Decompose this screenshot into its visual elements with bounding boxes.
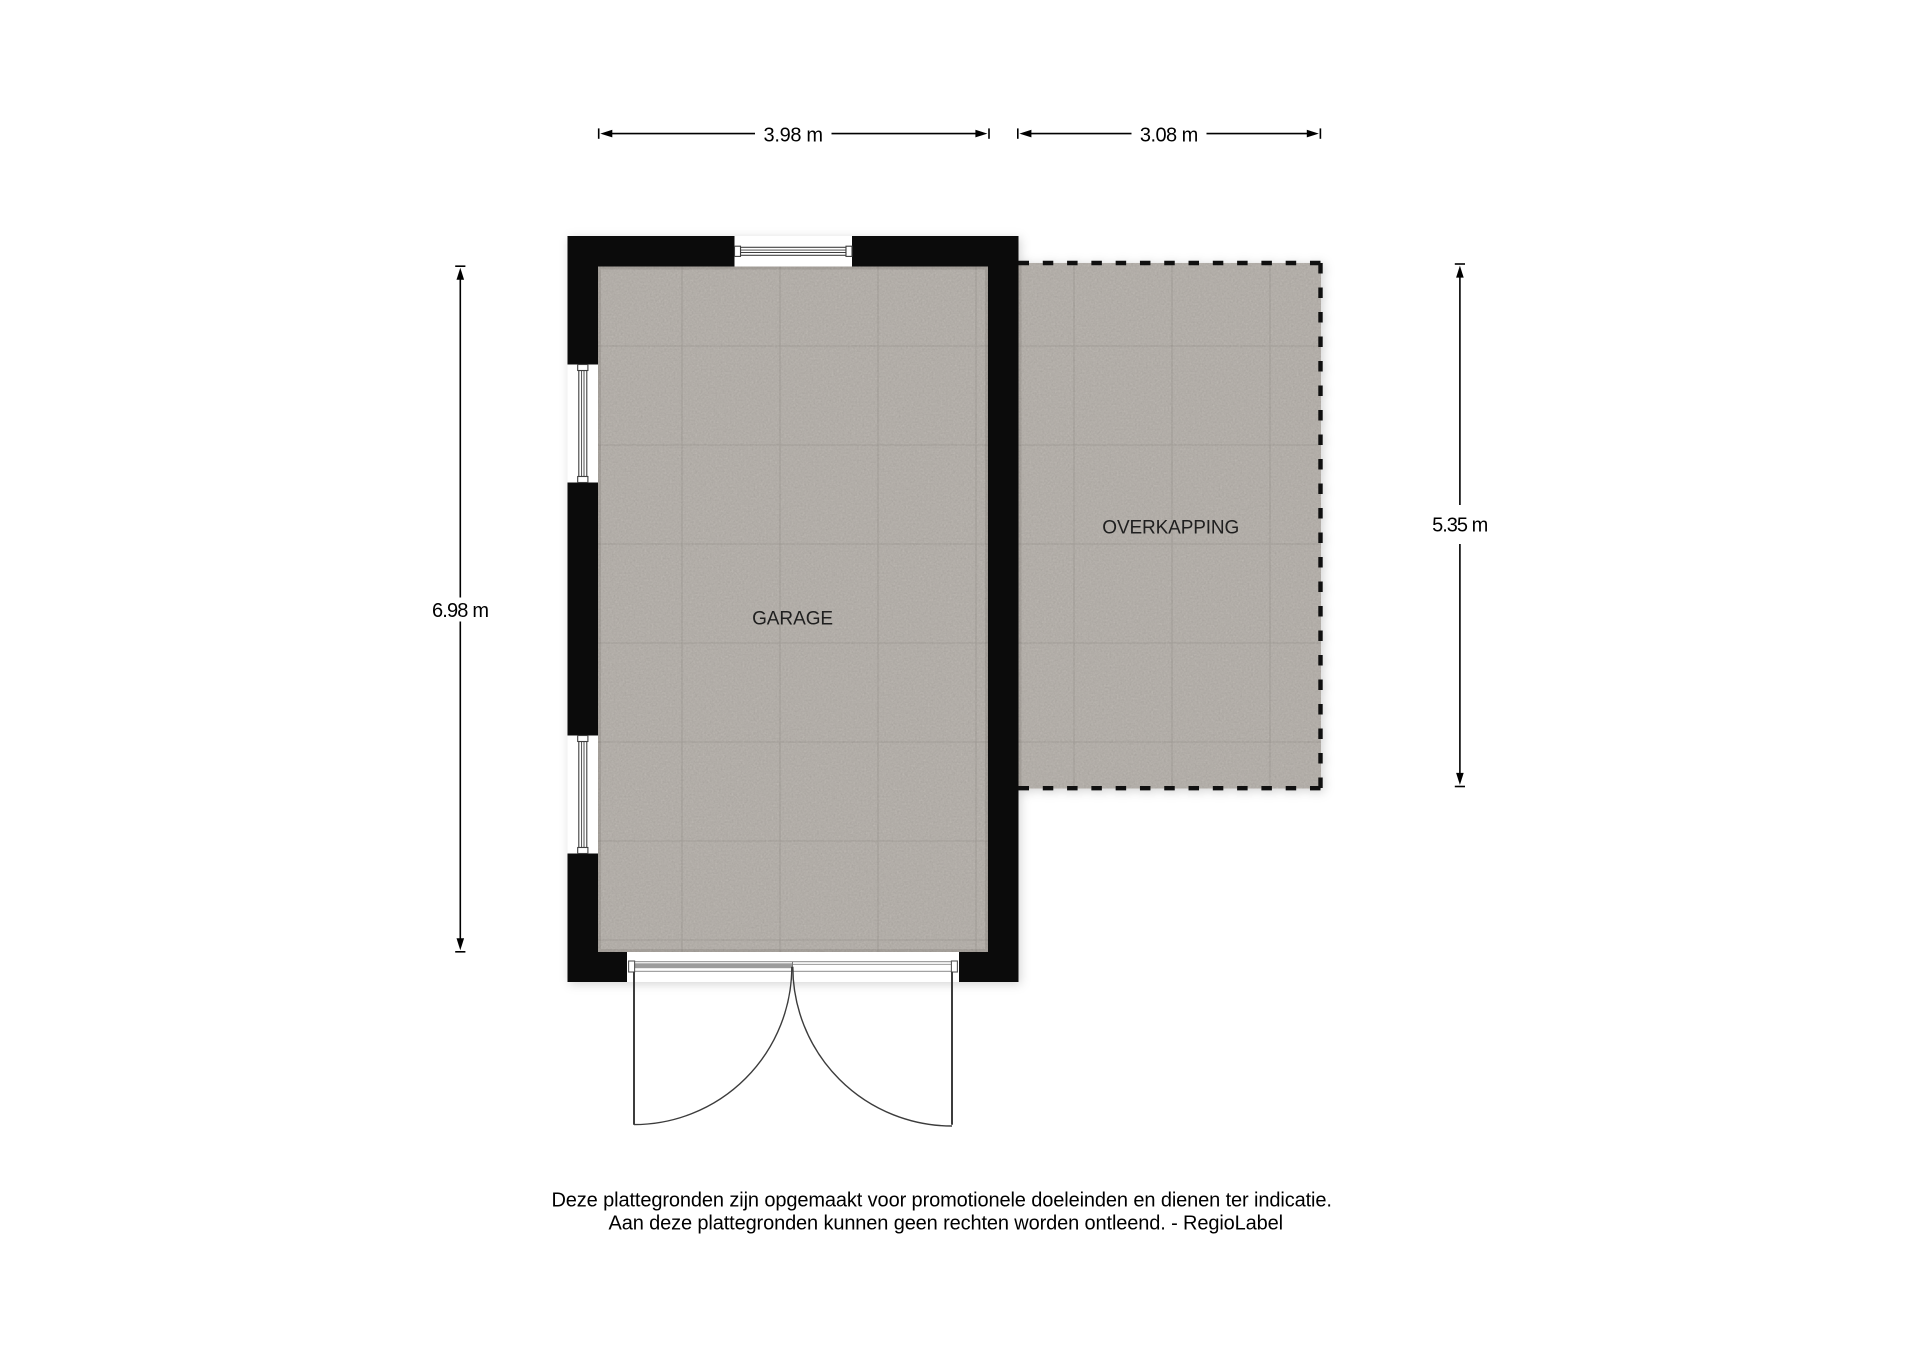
svg-text:6.98 m: 6.98 m (432, 600, 489, 622)
svg-text:5.35 m: 5.35 m (1432, 514, 1488, 536)
svg-text:3.98 m: 3.98 m (764, 124, 824, 146)
svg-text:Aan deze plattegronden kunnen: Aan deze plattegronden kunnen geen recht… (609, 1212, 1284, 1234)
svg-text:OVERKAPPING: OVERKAPPING (1102, 518, 1239, 539)
svg-text:Deze plattegronden zijn opgema: Deze plattegronden zijn opgemaakt voor p… (551, 1189, 1331, 1211)
svg-text:3.08 m: 3.08 m (1140, 124, 1198, 146)
svg-text:GARAGE: GARAGE (752, 609, 833, 630)
